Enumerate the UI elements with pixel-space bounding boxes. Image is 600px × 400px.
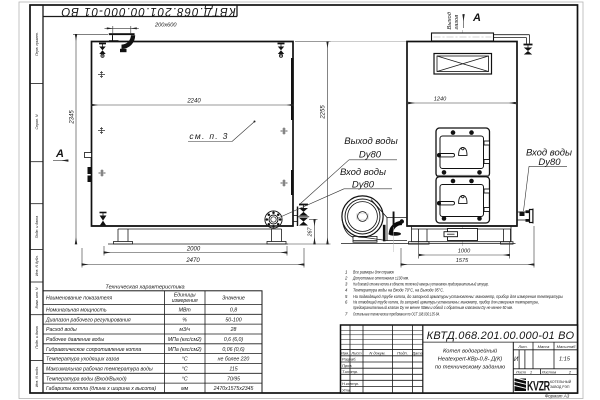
svg-text:°С: °С [182, 376, 188, 382]
svg-text:1:15: 1:15 [559, 357, 571, 363]
svg-text:2345: 2345 [70, 110, 76, 125]
svg-text:Остальные технические требован: Остальные технические требования по ОСТ … [353, 311, 440, 316]
svg-text:газов: газов [454, 15, 460, 30]
svg-text:28: 28 [230, 327, 237, 333]
svg-text:ЗАВОД РЭП: ЗАВОД РЭП [550, 385, 570, 389]
svg-text:°С: °С [182, 357, 188, 363]
svg-text:115: 115 [229, 367, 237, 373]
svg-text:Масса: Масса [538, 344, 551, 349]
svg-text:Лит.: Лит. [517, 344, 527, 349]
svg-text:Утв.: Утв. [342, 387, 351, 392]
svg-text:Габариты котла (длина х ширина: Габариты котла (длина х ширина х высота) [46, 386, 156, 392]
svg-text:Вход воды: Вход воды [340, 167, 386, 178]
svg-text:KVZR: KVZR [527, 380, 551, 394]
svg-text:КВТД.068.201.00.000-01 ВО: КВТД.068.201.00.000-01 ВО [60, 5, 235, 17]
svg-text:На боковой стенке котла в обла: На боковой стенке котла в области топочн… [353, 282, 489, 287]
svg-text:1: 1 [530, 369, 532, 374]
svg-text:Справ. N: Справ. N [35, 114, 39, 129]
svg-text:Гидравлическое сопротивление к: Гидравлическое сопротивление котла [46, 347, 141, 353]
svg-text:мм: мм [181, 386, 189, 392]
svg-text:Максимальная рабочая температу: Максимальная рабочая температура воды [46, 367, 153, 373]
svg-text:Разраб.: Разраб. [342, 357, 356, 362]
svg-text:Взам. инв. N: Взам. инв. N [35, 287, 39, 308]
svg-text:Подп. и дата: Подп. и дата [35, 216, 39, 239]
svg-text:А: А [55, 148, 64, 160]
svg-text:1240: 1240 [434, 97, 447, 103]
svg-text:°С: °С [182, 367, 188, 373]
svg-text:Heatexpert-КВр-0,8- Д(К): Heatexpert-КВр-0,8- Д(К) [438, 357, 503, 363]
svg-text:Значение: Значение [222, 296, 245, 302]
svg-text:КОТЕЛЬНЫЙ: КОТЕЛЬНЫЙ [550, 380, 572, 384]
svg-text:Все размеры для справок: Все размеры для справок [353, 269, 395, 274]
svg-text:Температура воды на Входе 70°: Температура воды на Входе 70°С, на Выход… [353, 288, 444, 293]
svg-text:2255: 2255 [321, 105, 327, 120]
svg-text:КВТД.068.201.00.000-01 ВО: КВТД.068.201.00.000-01 ВО [427, 330, 575, 342]
svg-text:%: % [182, 317, 187, 323]
svg-text:1000: 1000 [458, 249, 471, 255]
svg-text:0,6 (6,0): 0,6 (6,0) [224, 337, 244, 343]
svg-text:Диапазон рабочего регулировани: Диапазон рабочего регулирования [45, 317, 131, 323]
svg-text:200х600: 200х600 [154, 23, 177, 29]
svg-text:2000: 2000 [186, 247, 201, 253]
svg-text:Dy80: Dy80 [359, 150, 382, 161]
svg-text:Лист: Лист [350, 350, 362, 355]
svg-text:Инв. N подл.: Инв. N подл. [35, 366, 39, 387]
svg-text:0,06 (0,6): 0,06 (0,6) [222, 347, 244, 353]
svg-text:предохранительный клапан Dy н: предохранительный клапан Dy не менее 50м… [353, 305, 513, 310]
svg-text:267: 267 [308, 227, 314, 238]
svg-text:И: И [514, 357, 519, 363]
svg-text:Выход воды: Выход воды [344, 136, 397, 147]
svg-text:Перв. примен.: Перв. примен. [35, 32, 39, 56]
svg-text:Т.контр.: Т.контр. [342, 369, 358, 374]
svg-text:МВт: МВт [179, 308, 192, 314]
svg-text:Изм.: Изм. [341, 350, 350, 355]
svg-text:2470: 2470 [185, 258, 200, 264]
svg-text:50-100: 50-100 [225, 317, 241, 323]
svg-text:Лист: Лист [515, 369, 527, 374]
svg-text:2470х1575х2345: 2470х1575х2345 [213, 386, 254, 392]
svg-text:N докум.: N докум. [369, 350, 385, 355]
svg-text:Расход воды: Расход воды [46, 327, 77, 333]
svg-text:Температура воды (Вход/Выход): Температура воды (Вход/Выход) [46, 376, 127, 382]
svg-text:см. п. 3: см. п. 3 [189, 131, 228, 141]
svg-text:МПа (кгс/см2): МПа (кгс/см2) [168, 347, 202, 353]
svg-text:Дата: Дата [411, 350, 423, 355]
svg-text:1575: 1575 [456, 258, 469, 264]
svg-text:Листов: Листов [541, 369, 557, 374]
svg-text:Инв. N дубл.: Инв. N дубл. [35, 255, 39, 276]
svg-text:Подп.: Подп. [397, 350, 408, 355]
svg-text:Температура уходящих газов: Температура уходящих газов [46, 357, 119, 363]
svg-text:Пров.: Пров. [342, 363, 353, 368]
svg-text:Рабочее давление воды: Рабочее давление воды [46, 337, 104, 343]
svg-text:1: 1 [345, 269, 347, 274]
svg-text:70/95: 70/95 [227, 376, 240, 382]
svg-text:Н.контр.: Н.контр. [342, 381, 359, 386]
svg-text:по техническому заданию: по техническому заданию [435, 365, 506, 371]
svg-text:измерения: измерения [172, 298, 198, 304]
svg-text:Допустимые отклонения ±100 мм: Допустимые отклонения ±100 мм. [352, 275, 409, 280]
svg-text:На подводящей трубе котла, до: На подводящей трубе котла, до запорной а… [353, 294, 564, 299]
svg-text:Котел водогрейный: Котел водогрейный [443, 347, 498, 354]
svg-text:Номинальная мощность: Номинальная мощность [46, 308, 107, 314]
svg-text:0,8: 0,8 [230, 308, 237, 314]
svg-text:м3/ч: м3/ч [179, 327, 190, 333]
svg-text:А: А [472, 12, 481, 24]
svg-text:Масштаб: Масштаб [557, 344, 576, 349]
svg-text:Техническая характеристика: Техническая характеристика [105, 284, 184, 290]
svg-text:Выход: Выход [447, 11, 453, 29]
svg-text:Наименование показателя: Наименование показателя [46, 296, 112, 302]
svg-text:Формат А3: Формат А3 [545, 393, 570, 398]
svg-text:На отводящей трубе котла, до з: На отводящей трубе котла, до запорной ар… [353, 300, 539, 305]
svg-text:МПа (кгс/см2): МПа (кгс/см2) [168, 337, 202, 343]
svg-text:не более 220: не более 220 [218, 357, 250, 363]
svg-text:2240: 2240 [186, 99, 201, 105]
svg-text:Подп. и дата: Подп. и дата [35, 326, 39, 349]
